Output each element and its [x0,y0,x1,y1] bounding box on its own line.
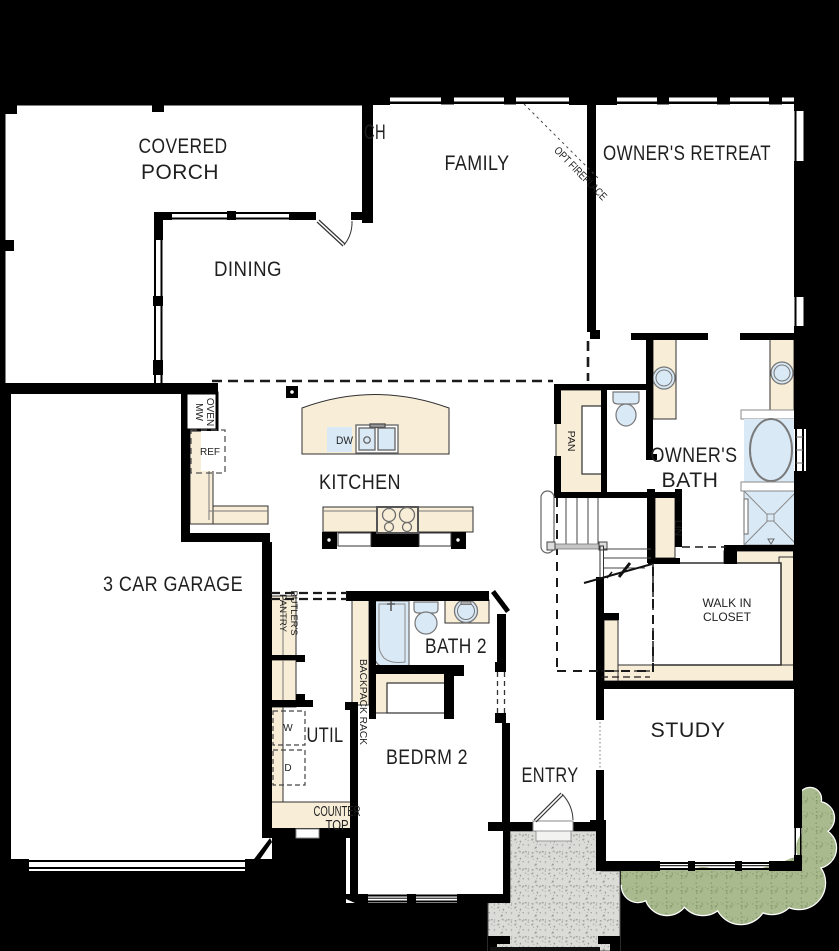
svg-text:KITCHEN: KITCHEN [319,471,401,494]
svg-text:PANTRY: PANTRY [277,594,288,633]
svg-text:LIN: LIN [672,520,684,536]
svg-text:UTIL: UTIL [307,724,344,747]
svg-text:REF: REF [200,447,220,458]
svg-text:BATH: BATH [662,469,719,492]
svg-text:OWNER'S: OWNER'S [651,444,738,467]
svg-text:PORCH: PORCH [141,161,219,184]
svg-text:MW: MW [193,403,204,421]
svg-text:BATH 2: BATH 2 [425,635,487,658]
svg-text:DW: DW [336,435,354,447]
svg-text:FAMILY: FAMILY [445,152,510,175]
svg-text:BUTLER'S: BUTLER'S [288,591,299,636]
svg-text:PAN: PAN [565,431,577,452]
svg-text:D: D [284,763,291,774]
svg-text:OWNER'S RETREAT: OWNER'S RETREAT [603,142,771,165]
svg-text:STUDY: STUDY [651,719,726,742]
svg-text:3 CAR GARAGE: 3 CAR GARAGE [103,573,243,596]
svg-text:TOP: TOP [326,818,349,834]
svg-text:COVERED: COVERED [139,135,228,158]
svg-text:BACKPACK RACK: BACKPACK RACK [357,659,368,745]
svg-text:CH: CH [364,121,386,144]
svg-text:DINING: DINING [214,258,282,281]
svg-text:OVEN: OVEN [204,398,215,426]
svg-text:W: W [283,723,293,734]
svg-text:WALK IN: WALK IN [703,596,752,610]
svg-text:ENTRY: ENTRY [522,764,579,787]
svg-text:CLOSET: CLOSET [703,610,752,624]
svg-text:BEDRM 2: BEDRM 2 [386,746,468,769]
